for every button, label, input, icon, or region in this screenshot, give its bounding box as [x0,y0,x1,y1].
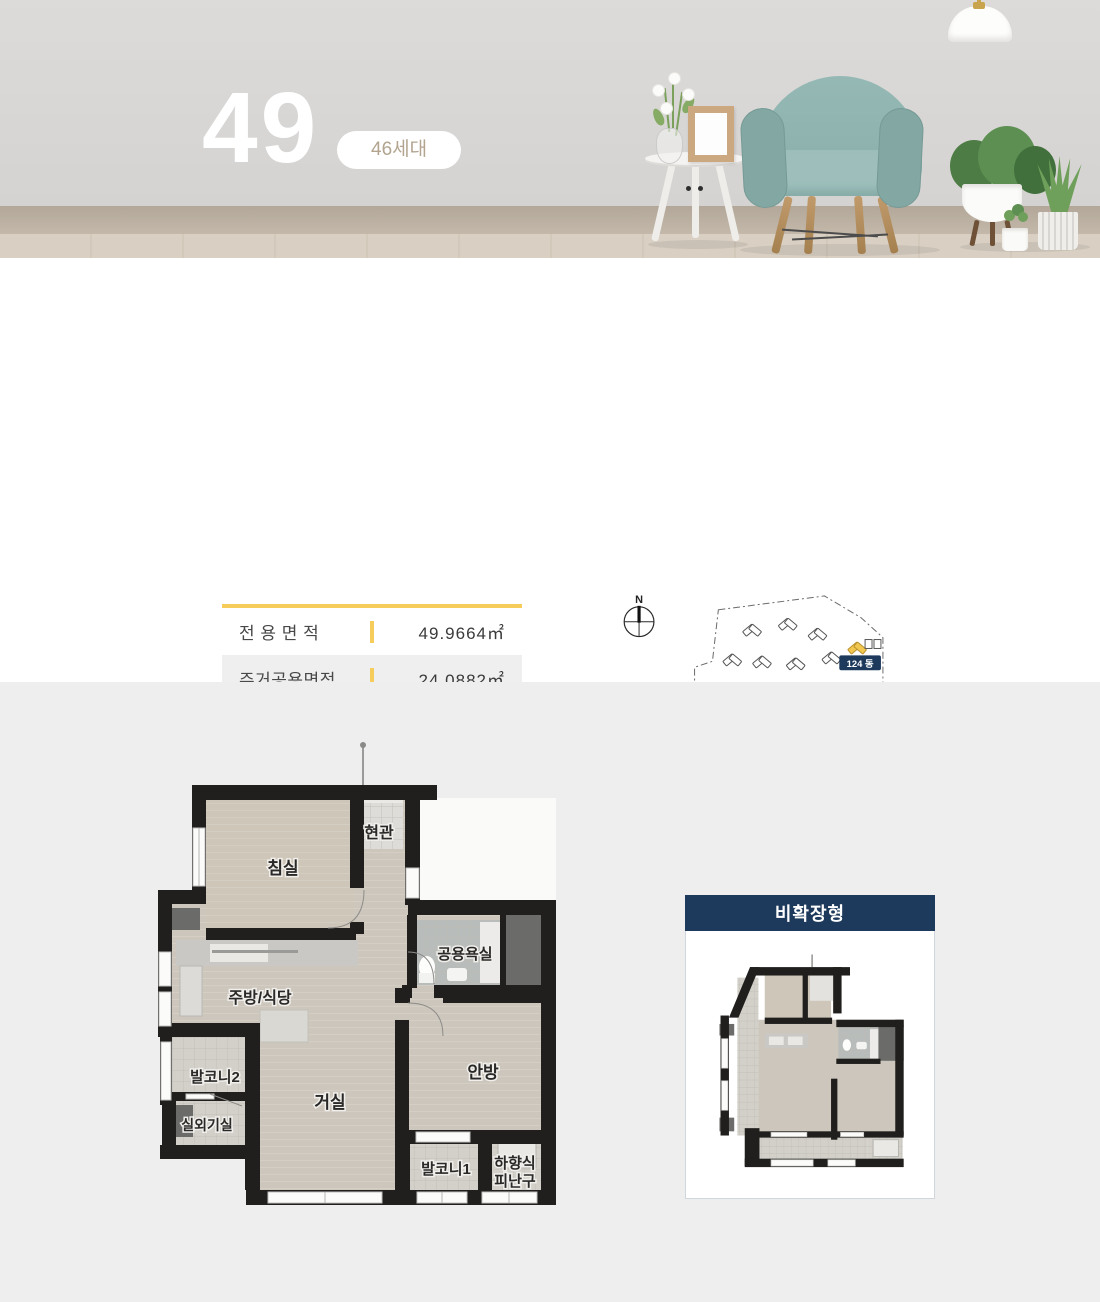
main-floorplan: 현관 침실 공용욕실 주방/식당 발코니2 실외기실 거실 안방 발코니1 하향… [150,740,570,1215]
flower-bloom [652,84,665,97]
pendant-lamp-icon [948,6,1012,42]
vase [656,128,683,164]
flower-bloom [660,102,673,115]
armchair-arm [875,107,924,209]
side-table-leg [692,162,699,238]
label-hatch-1: 하향식 [494,1155,535,1172]
pendant-lamp-cap [973,2,985,9]
mini-floorplan [710,953,910,1177]
exterior-notch [420,798,556,902]
label-entrance: 현관 [364,823,394,842]
hero-banner: 49 46세대 [0,0,1100,258]
table-hinge [698,186,703,191]
chair-shadow [740,244,940,256]
compass-icon: N [624,594,654,637]
sink [447,968,467,981]
small-plant-pot [1002,228,1028,251]
plant-stand-leg [990,220,995,246]
area-value: 49.9664㎡ [382,619,505,644]
row-divider [370,621,374,643]
non-expanded-title: 비확장형 [685,895,935,931]
compass-north-label: N [635,594,643,606]
hero-floor-baseboard [0,206,1100,234]
label-balcony1: 발코니1 [421,1161,471,1178]
table-row: 전 용 면 적 49.9664㎡ [222,608,522,655]
flower-bloom [668,72,681,85]
small-plant-leaf [1018,212,1028,222]
label-kitchen: 주방/식당 [228,989,292,1007]
label-hatch-2: 피난구 [494,1173,536,1190]
label-bedroom: 침실 [267,858,298,878]
label-balcony2: 발코니2 [190,1069,240,1086]
building-badge-label: 124 동 [847,658,874,669]
households-badge: 46세대 [337,131,461,169]
page: 49 46세대 전 용 면 적 49.9664㎡ 주거공용면적 24.0882㎡… [0,0,1100,1302]
unit-type-number: 49 [202,78,319,178]
table-shadow [648,240,748,249]
photo-frame [688,106,734,162]
non-expanded-plan-card: 비확장형 [685,895,935,1199]
armchair-arm [739,107,788,209]
table-hinge [686,186,691,191]
kitchen-island [260,1010,308,1042]
area-label: 전 용 면 적 [239,619,370,644]
label-master: 안방 [467,1063,499,1082]
highlighted-building [848,642,867,654]
flower-bloom [682,88,695,101]
utility-shaft [506,915,541,987]
label-living: 거실 [314,1093,345,1112]
hero-floor-wood [0,234,1100,258]
refrigerator [180,966,202,1016]
label-outdoor-unit: 실외기실 [181,1117,233,1133]
aloe-pot [1038,212,1078,250]
area-info-section: 전 용 면 적 49.9664㎡ 주거공용면적 24.0882㎡ 공 급 면 적… [0,258,1100,682]
label-bathroom: 공용욕실 [437,946,492,963]
antenna-tip [360,742,366,748]
